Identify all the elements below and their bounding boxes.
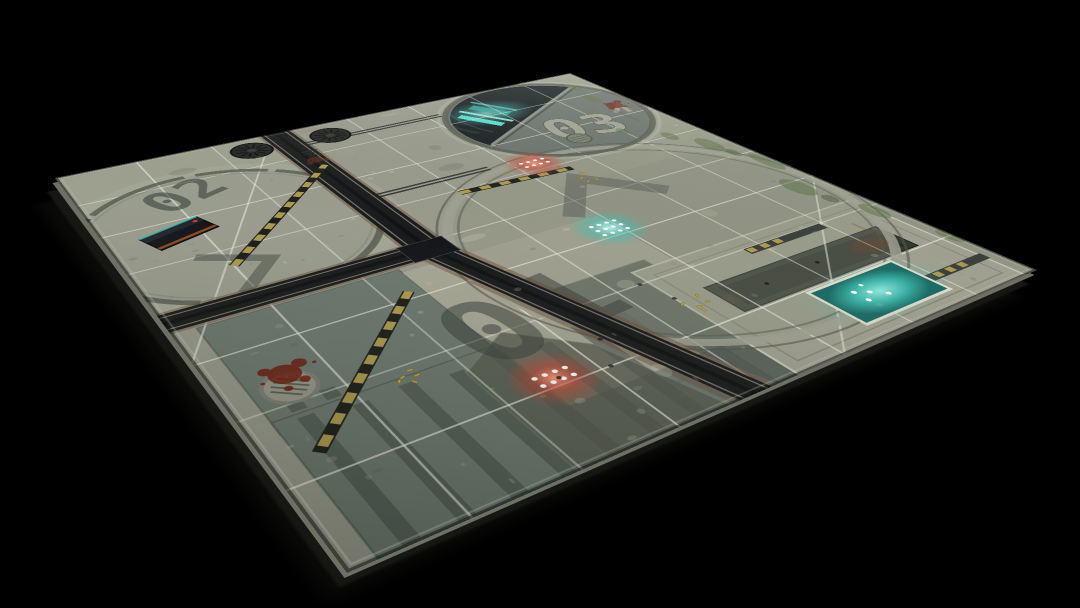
product-render-stage: 01 02 03	[0, 0, 1080, 608]
